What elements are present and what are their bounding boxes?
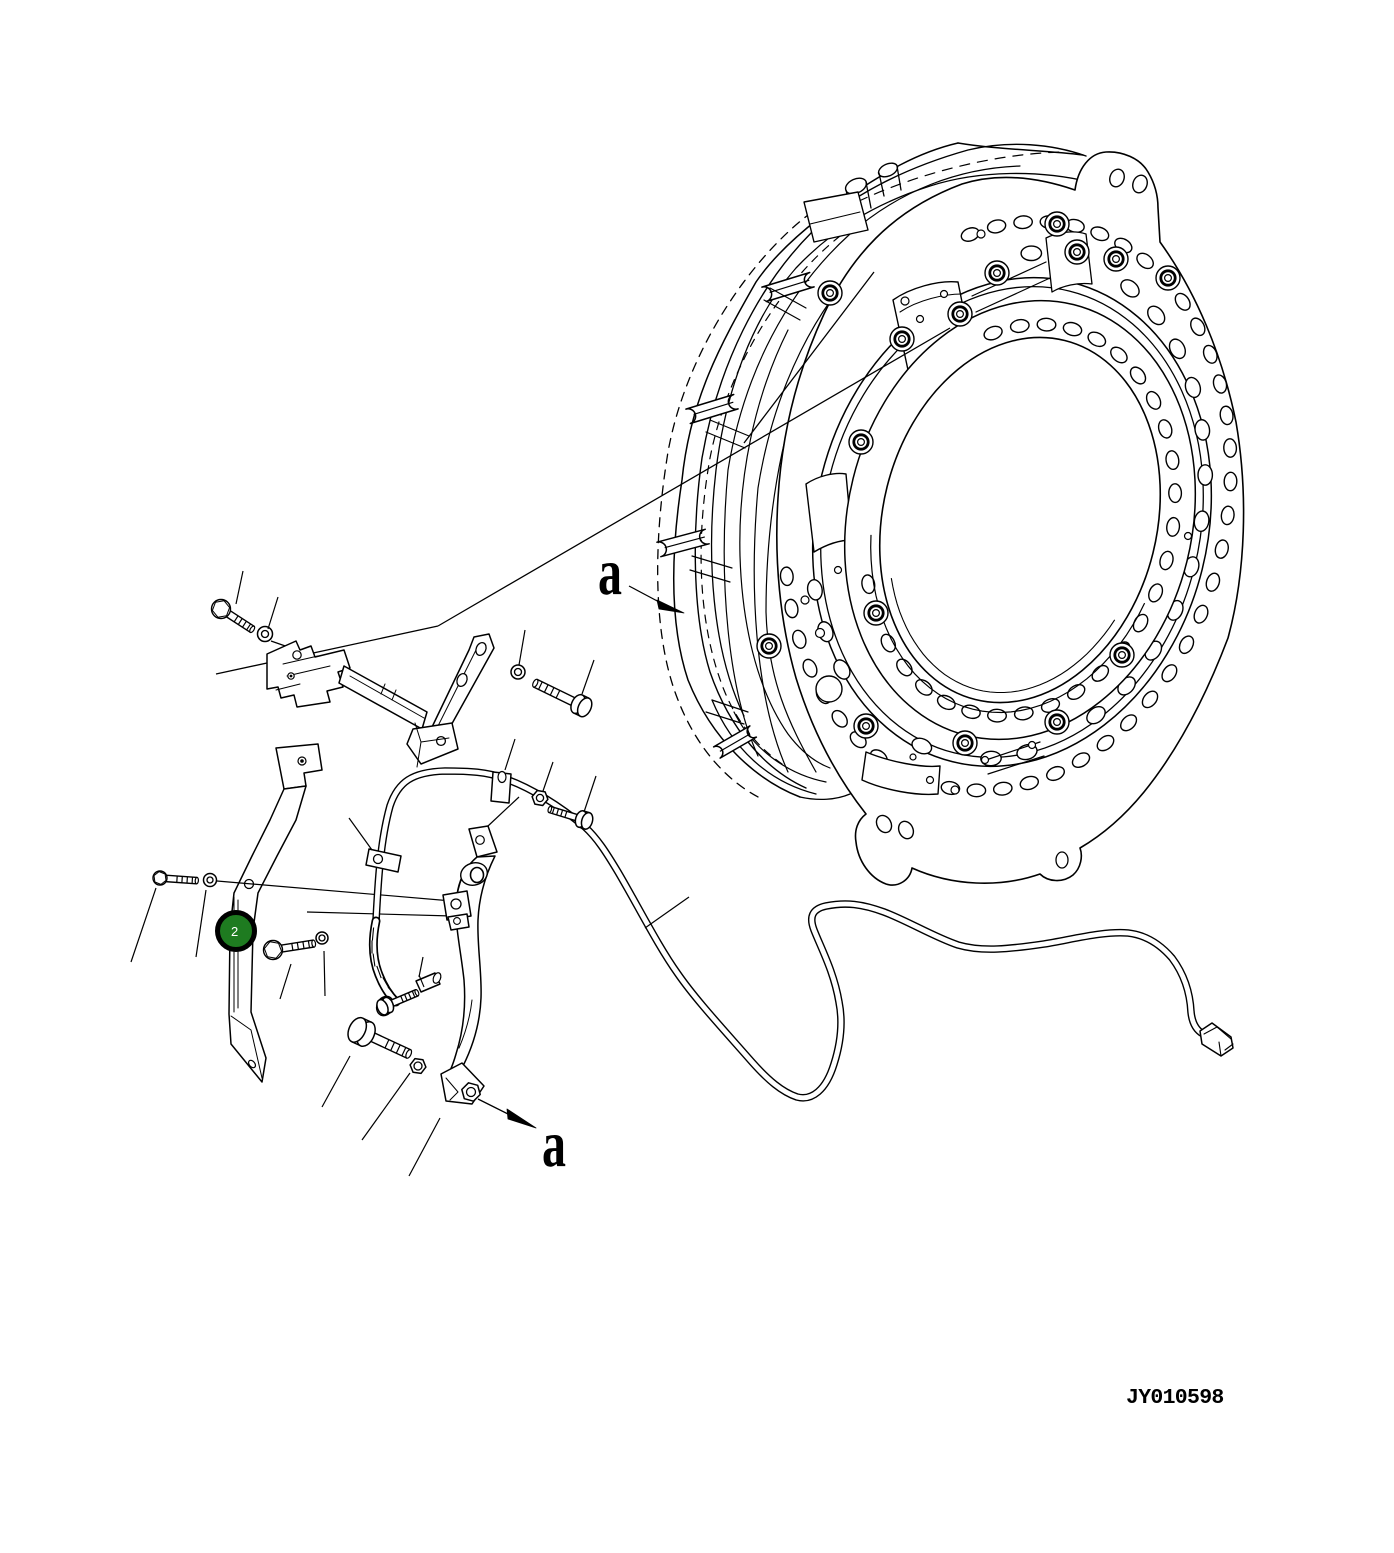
svg-text:a: a [542,1108,566,1181]
svg-text:JY010598: JY010598 [1126,1386,1224,1410]
svg-text:2: 2 [231,924,238,939]
svg-text:a: a [598,536,622,609]
